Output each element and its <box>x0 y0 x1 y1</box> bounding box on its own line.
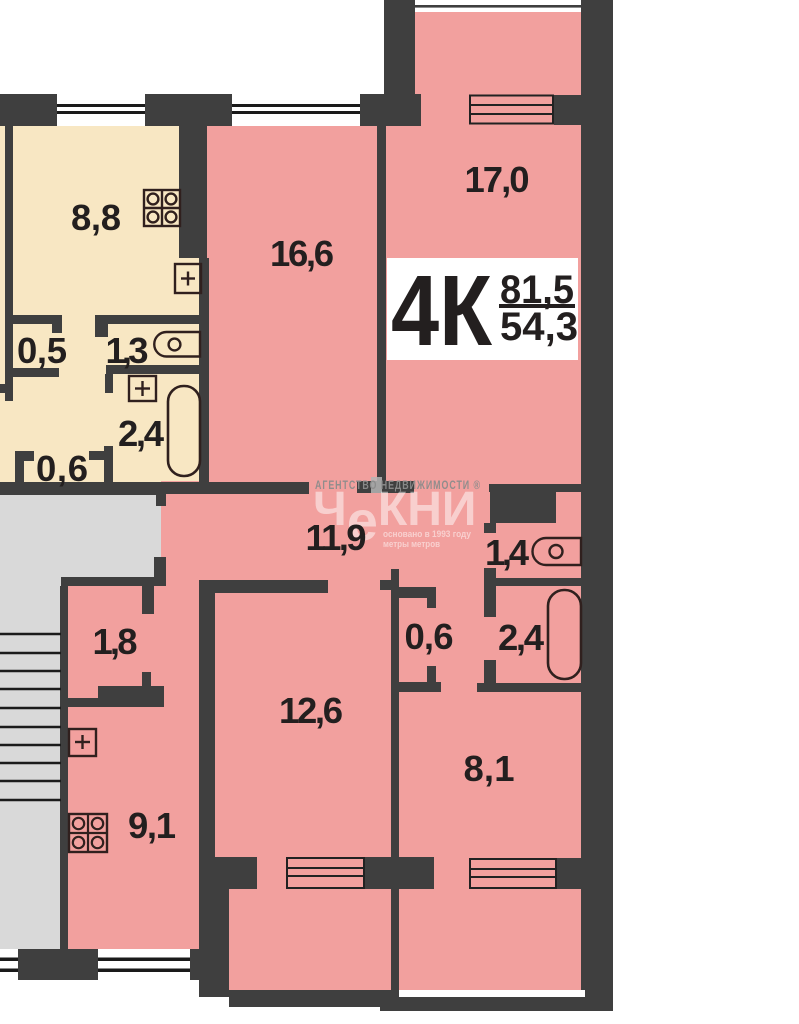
svg-text:1,4: 1,4 <box>485 532 530 573</box>
svg-text:0,6: 0,6 <box>405 616 454 657</box>
svg-text:1,8: 1,8 <box>93 621 138 662</box>
svg-text:54,3: 54,3 <box>500 305 578 349</box>
svg-text:8,8: 8,8 <box>71 197 121 238</box>
svg-text:0,6: 0,6 <box>36 448 88 489</box>
svg-text:0,5: 0,5 <box>17 330 67 371</box>
svg-text:9,1: 9,1 <box>128 805 176 846</box>
svg-text:8,1: 8,1 <box>464 748 515 789</box>
svg-text:2,4: 2,4 <box>118 413 165 454</box>
svg-text:17,0: 17,0 <box>465 159 530 200</box>
svg-text:4К: 4К <box>391 255 493 367</box>
svg-text:основано в 1993 году: основано в 1993 году <box>383 529 471 539</box>
svg-text:11,9: 11,9 <box>306 517 367 558</box>
svg-text:1,3: 1,3 <box>106 330 149 371</box>
svg-text:метры метров: метры метров <box>383 539 440 549</box>
svg-text:2,4: 2,4 <box>498 617 545 658</box>
svg-text:16,6: 16,6 <box>270 233 334 274</box>
svg-text:12,6: 12,6 <box>279 690 343 731</box>
